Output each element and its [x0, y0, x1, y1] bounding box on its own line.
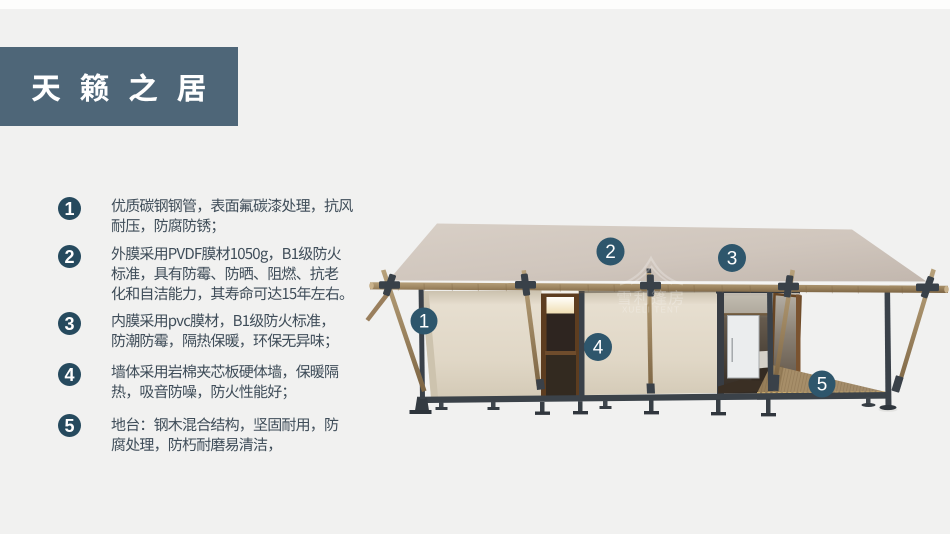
svg-text:5: 5	[817, 375, 828, 396]
svg-text:XUELI TENT: XUELI TENT	[622, 306, 680, 315]
svg-text:1: 1	[419, 312, 430, 333]
svg-text:2: 2	[605, 242, 616, 263]
svg-text:4: 4	[593, 338, 604, 359]
svg-text:3: 3	[727, 249, 738, 270]
